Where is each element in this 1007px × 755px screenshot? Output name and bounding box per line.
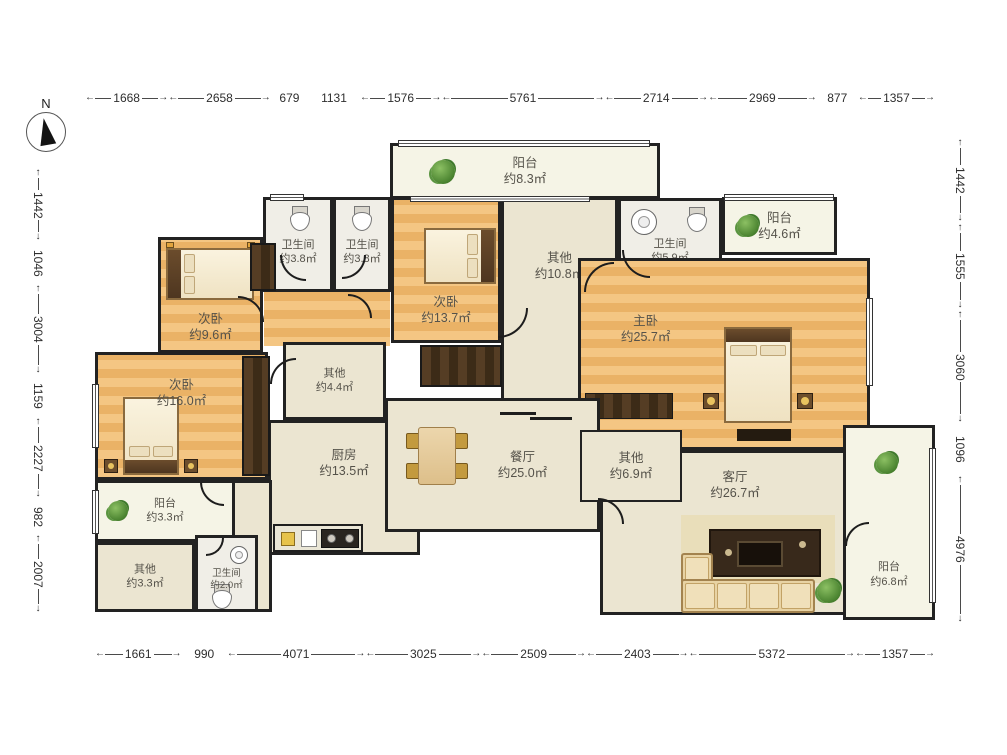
washbasin-icon	[230, 546, 248, 564]
room-area: 约10.8㎡	[535, 266, 584, 282]
room-name: 厨房	[331, 447, 356, 463]
bed-headboard	[726, 329, 790, 342]
room-name: 卫生间	[654, 237, 687, 251]
bed-pillows	[726, 342, 790, 359]
room-label: 餐厅 约25.0㎡	[448, 449, 597, 482]
toilet-icon	[290, 206, 310, 231]
dim-segment: ←1357→	[858, 90, 935, 106]
room-area: 约3.3㎡	[146, 511, 183, 525]
room-area: 约4.4㎡	[316, 381, 353, 395]
room-name: 阳台	[878, 560, 900, 574]
dim-segment: ←2969→	[708, 90, 817, 106]
dim-segment: ←2714→	[604, 90, 708, 106]
wardrobe-icon	[420, 345, 502, 387]
room-area: 约6.8㎡	[870, 575, 907, 589]
dim-segment: ←1357→	[855, 646, 935, 662]
dim-segment: ←1668→	[85, 90, 168, 106]
window	[724, 194, 834, 201]
dimension-column-right: ↑1442↓↑1555↓↑3060↓↑1096↓↑4976↓	[952, 138, 968, 624]
door-arc	[270, 358, 296, 384]
floorplan-canvas: N ←1668→←2658→←679→←1131→←1576→←5761→←27…	[0, 0, 1007, 755]
bed-pillows	[125, 443, 177, 460]
dim-segment: ↑2007↓	[30, 534, 46, 614]
nightstand-icon	[703, 393, 719, 409]
dim-segment: ←1576→	[360, 90, 441, 106]
dim-segment: ←5372→	[689, 646, 856, 662]
toilet-icon	[352, 206, 372, 231]
room-balcony-right: 阳台 约6.8㎡	[843, 425, 935, 620]
room-name: 餐厅	[510, 449, 535, 465]
dim-segment: ↑1046↓	[30, 242, 46, 284]
room-area: 约25.0㎡	[498, 465, 547, 481]
washing-machine-icon	[631, 209, 657, 235]
corridor-wood-patch	[264, 292, 390, 346]
window	[398, 140, 650, 147]
room-area: 约4.6㎡	[758, 226, 800, 242]
room-name: 次卧	[198, 311, 223, 327]
dim-segment: ↑4976↓	[952, 475, 968, 624]
window	[929, 448, 936, 603]
room-area: 约9.6㎡	[189, 327, 231, 343]
plant-icon	[876, 452, 898, 474]
dim-segment: ←2658→	[168, 90, 271, 106]
nightstand-icon	[104, 459, 118, 473]
window	[866, 298, 873, 386]
room-master-bedroom: 主卧 约25.7㎡	[578, 258, 870, 450]
dim-segment: ↑2227↓	[30, 417, 46, 499]
room-name: 阳台	[512, 155, 537, 171]
room-name: 其他	[618, 450, 643, 466]
toilet-icon	[687, 207, 707, 232]
room-other-bottomleft: 其他 约3.3㎡	[95, 542, 195, 612]
bed-icon	[123, 397, 179, 475]
room-name: 主卧	[633, 313, 658, 329]
dim-segment: ↑1442↓	[30, 168, 46, 242]
bed-icon	[166, 248, 254, 300]
kitchen-counter	[273, 524, 363, 552]
room-area: 约8.3㎡	[504, 171, 546, 187]
dim-segment: ←4071→	[227, 646, 365, 662]
bed-icon	[724, 327, 792, 423]
room-bedroom-topleft: 次卧 约9.6㎡	[158, 237, 263, 353]
plant-icon	[431, 160, 455, 184]
bed-bench-icon	[737, 429, 791, 441]
bed-headboard	[168, 250, 181, 298]
dining-tabletop	[418, 427, 456, 485]
room-label: 主卧 约25.7㎡	[621, 313, 670, 346]
chair-icon	[454, 463, 468, 479]
dim-segment: ↑1096↓	[952, 424, 968, 475]
dining-table-icon	[406, 427, 468, 485]
plant-icon	[737, 215, 759, 237]
dim-segment: ←679→	[271, 90, 308, 106]
dimension-row-bottom: ←1661→←990→←4071→←3025→←2509→←2403→←5372…	[95, 646, 935, 662]
window	[92, 490, 99, 534]
dim-segment: ↑1159↓	[30, 375, 46, 417]
room-label: 其他 约3.3㎡	[98, 563, 192, 592]
dim-segment: ←2403→	[586, 646, 689, 662]
room-other-small: 其他 约4.4㎡	[283, 342, 386, 420]
room-label: 阳台 约6.8㎡	[846, 560, 932, 589]
bed-headboard	[481, 230, 494, 282]
compass-arrow-icon	[36, 117, 56, 146]
closet-icon	[250, 243, 276, 291]
wardrobe-icon	[242, 356, 270, 476]
toilet-icon	[212, 584, 232, 609]
room-label: 其他 约6.9㎡	[582, 450, 680, 483]
room-name: 卫生间	[282, 238, 315, 252]
sliding-door-icon	[500, 412, 572, 421]
bed-pillows	[464, 230, 481, 282]
room-name: 客厅	[722, 469, 747, 485]
room-name: 其他	[134, 563, 156, 577]
room-name: 次卧	[433, 294, 458, 310]
room-label: 次卧 约13.7㎡	[394, 294, 498, 327]
compass: N	[24, 96, 68, 152]
bed-icon	[424, 228, 496, 284]
room-balcony-top: 阳台 约8.3㎡	[390, 143, 660, 199]
room-area: 约13.5㎡	[319, 463, 368, 479]
room-name: 其他	[324, 367, 346, 381]
dimension-column-left: ↑1442↓↑1046↓↑3004↓↑1159↓↑2227↓↑982↓↑2007…	[30, 168, 46, 614]
dim-segment: ←1661→	[95, 646, 182, 662]
dim-segment: ↑982↓	[30, 499, 46, 534]
plant-icon	[108, 501, 128, 521]
room-bedroom-middle: 次卧 约13.7㎡	[391, 197, 501, 343]
room-area: 约13.7㎡	[421, 310, 470, 326]
room-name: 次卧	[169, 377, 194, 393]
window	[270, 194, 304, 201]
window	[410, 196, 590, 202]
dim-segment: ←877→	[817, 90, 858, 106]
window	[92, 384, 99, 448]
compass-north-label: N	[24, 96, 68, 111]
dim-segment: ↑1442↓	[952, 138, 968, 223]
room-name: 阳台	[154, 497, 176, 511]
nightstand-icon	[184, 459, 198, 473]
room-bathroom-d: 卫生间 约2.0㎡	[195, 535, 258, 612]
dim-segment: ←990→	[182, 646, 227, 662]
room-name: 卫生间	[346, 238, 379, 252]
room-label: 其他 约4.4㎡	[286, 367, 383, 396]
dim-segment: ←1131→	[308, 90, 360, 106]
dim-segment: ←5761→	[441, 90, 604, 106]
bed-headboard	[125, 460, 177, 473]
room-area: 约26.7㎡	[710, 485, 759, 501]
dim-segment: ↑3060↓	[952, 310, 968, 424]
plant-icon	[817, 579, 841, 603]
compass-circle	[26, 112, 66, 152]
room-area: 约25.7㎡	[621, 329, 670, 345]
dim-segment: ↑1555↓	[952, 223, 968, 310]
sofa-icon	[681, 579, 815, 613]
stove-icon	[321, 529, 359, 548]
sink-icon	[281, 532, 295, 546]
room-name: 卫生间	[212, 568, 241, 580]
dim-segment: ←3025→	[365, 646, 481, 662]
room-name: 阳台	[767, 210, 792, 226]
dim-segment: ←2509→	[481, 646, 586, 662]
cutting-board-icon	[301, 530, 317, 547]
coffee-table-icon	[737, 541, 783, 567]
dim-segment: ↑3004↓	[30, 284, 46, 375]
wall-lamp-icon	[166, 242, 174, 248]
room-other-mid: 其他 约6.9㎡	[580, 430, 682, 502]
room-name: 其他	[547, 250, 572, 266]
chair-icon	[454, 433, 468, 449]
room-area: 约6.9㎡	[610, 466, 652, 482]
bed-pillows	[181, 250, 198, 298]
nightstand-icon	[797, 393, 813, 409]
dimension-row-top: ←1668→←2658→←679→←1131→←1576→←5761→←2714…	[85, 90, 935, 106]
room-balcony-topright: 阳台 约4.6㎡	[722, 197, 837, 255]
room-area: 约3.3㎡	[126, 577, 163, 591]
